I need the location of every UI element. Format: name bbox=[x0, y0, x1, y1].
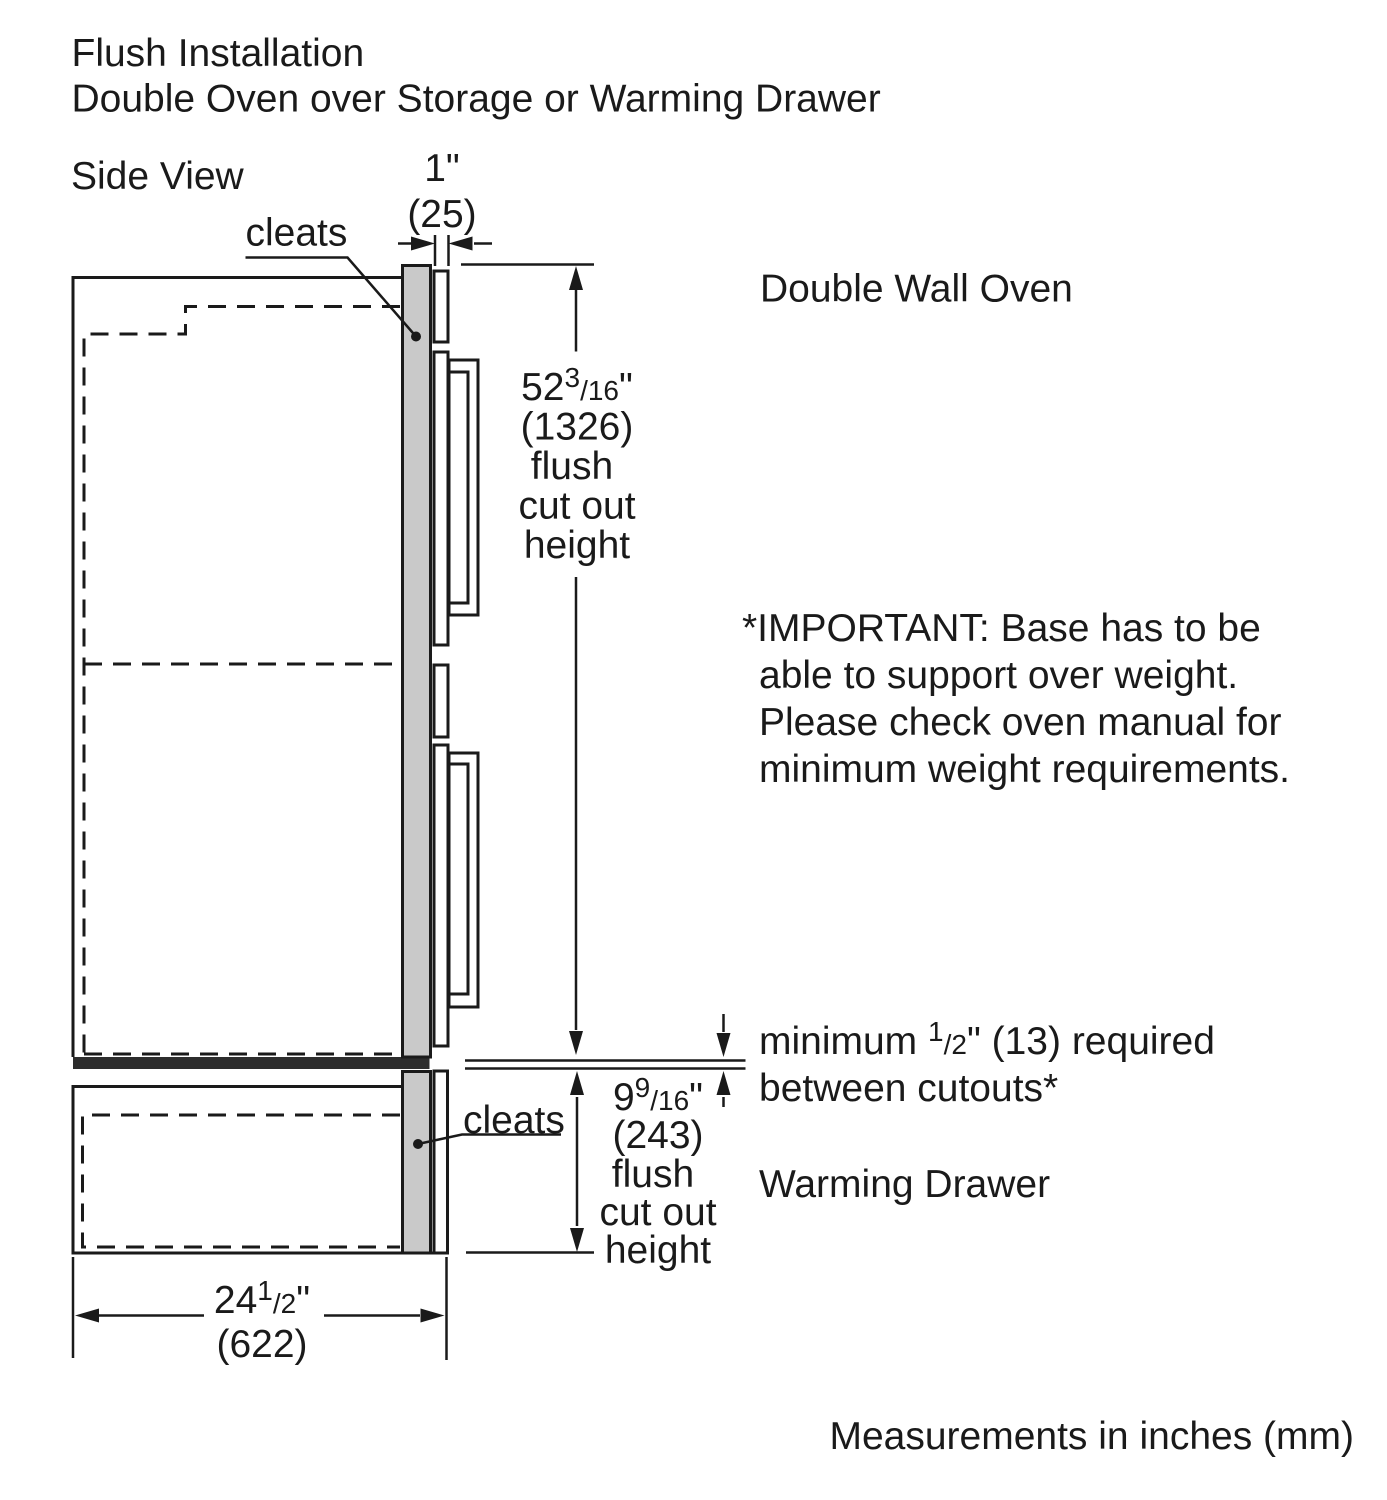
svg-text:(25): (25) bbox=[407, 193, 476, 236]
svg-text:Please check oven manual for: Please check oven manual for bbox=[759, 701, 1281, 744]
svg-text:Side View: Side View bbox=[71, 155, 245, 198]
svg-text:(1326): (1326) bbox=[521, 406, 634, 449]
svg-text:minimum weight requirements.: minimum weight requirements. bbox=[759, 748, 1290, 791]
svg-text:height: height bbox=[524, 524, 630, 567]
svg-text:minimum 1/2" (13) required: minimum 1/2" (13) required bbox=[759, 1016, 1215, 1063]
svg-text:1": 1" bbox=[424, 147, 460, 190]
svg-text:between cutouts*: between cutouts* bbox=[759, 1067, 1058, 1110]
svg-text:cut out: cut out bbox=[599, 1191, 716, 1234]
svg-text:(622): (622) bbox=[216, 1323, 307, 1366]
svg-text:Double Oven over Storage or Wa: Double Oven over Storage or Warming Draw… bbox=[72, 78, 881, 121]
svg-text:cut out: cut out bbox=[518, 485, 635, 528]
svg-text:(243): (243) bbox=[612, 1114, 703, 1157]
svg-text:height: height bbox=[605, 1229, 711, 1272]
svg-text:Warming Drawer: Warming Drawer bbox=[759, 1163, 1050, 1206]
svg-text:able to support over weight.: able to support over weight. bbox=[759, 654, 1238, 697]
svg-text:*IMPORTANT: Base has to be: *IMPORTANT: Base has to be bbox=[742, 607, 1261, 650]
svg-text:flush: flush bbox=[531, 445, 613, 488]
svg-text:Measurements in inches (mm): Measurements in inches (mm) bbox=[830, 1415, 1354, 1458]
svg-text:flush: flush bbox=[612, 1153, 694, 1196]
svg-text:Double Wall Oven: Double Wall Oven bbox=[760, 268, 1073, 311]
svg-text:Flush Installation: Flush Installation bbox=[72, 32, 365, 75]
svg-text:cleats: cleats bbox=[246, 212, 348, 255]
